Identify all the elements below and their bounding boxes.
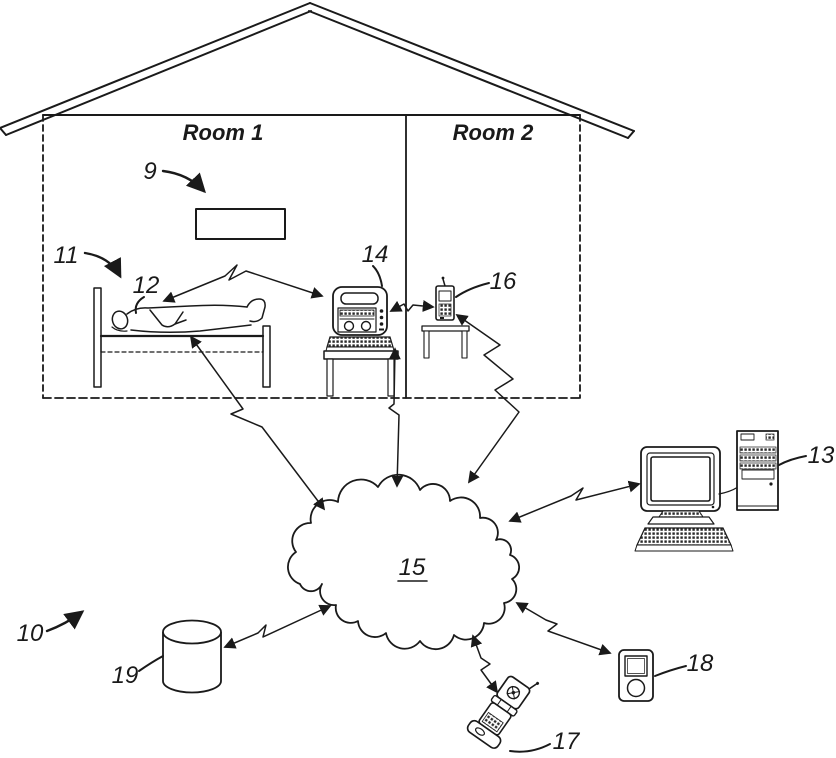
leader-computer [779,456,806,465]
label-monitoring-device: 14 [362,241,389,268]
wall-display [196,209,285,239]
media-player [619,650,653,701]
diagram-canvas: Room 1 Room 2 [0,0,836,758]
label-wall-display: 9 [143,158,156,185]
flip-phone [466,663,542,750]
label-player: 18 [687,650,714,677]
device-knob [345,322,354,331]
device-keyboard [326,337,394,351]
leader-monitoring-device [373,266,382,286]
label-house: 11 [54,242,79,269]
monitoring-device [333,287,387,335]
leader-player [655,666,686,676]
bedside-table [324,351,398,396]
leader-system [47,612,82,631]
room1-label: Room 1 [183,120,264,145]
label-computer: 13 [808,442,835,469]
bed [94,288,270,387]
device-knob [362,322,371,331]
database-cylinder [163,621,221,693]
monitor-cable [719,487,738,494]
computer-keyboard [637,528,731,545]
leader-handheld [456,283,489,297]
leader-database [139,656,163,671]
patent-figure: Room 1 Room 2 [0,0,836,758]
label-database: 19 [112,662,139,689]
roof [0,3,634,138]
link-monitor-handheld [391,304,433,311]
link-network-phone [473,636,497,692]
room2-label: Room 2 [453,120,534,145]
label-patient: 12 [133,272,160,299]
link-patient-network [191,337,324,509]
monitor-screen [651,457,710,501]
leader-house [85,253,120,276]
network-label: 15 [399,554,426,581]
computer-tower [737,431,778,510]
handheld-keypad [439,304,451,316]
leader-phone [510,744,550,752]
link-network-player [517,603,610,653]
monitor-neck [659,511,703,517]
label-system: 10 [17,620,44,647]
desktop-computer [635,431,778,551]
leader-wall-display [163,171,204,191]
leader-patient [136,297,144,313]
patient-figure [110,299,265,332]
side-table [422,326,469,358]
link-network-computer [510,484,639,521]
monitor-base [648,517,714,524]
label-handheld: 16 [490,268,517,295]
link-network-database [225,606,330,647]
link-patient-monitor [164,265,322,301]
label-phone: 17 [553,728,581,755]
device-display [341,293,378,304]
handheld-device [436,277,454,320]
